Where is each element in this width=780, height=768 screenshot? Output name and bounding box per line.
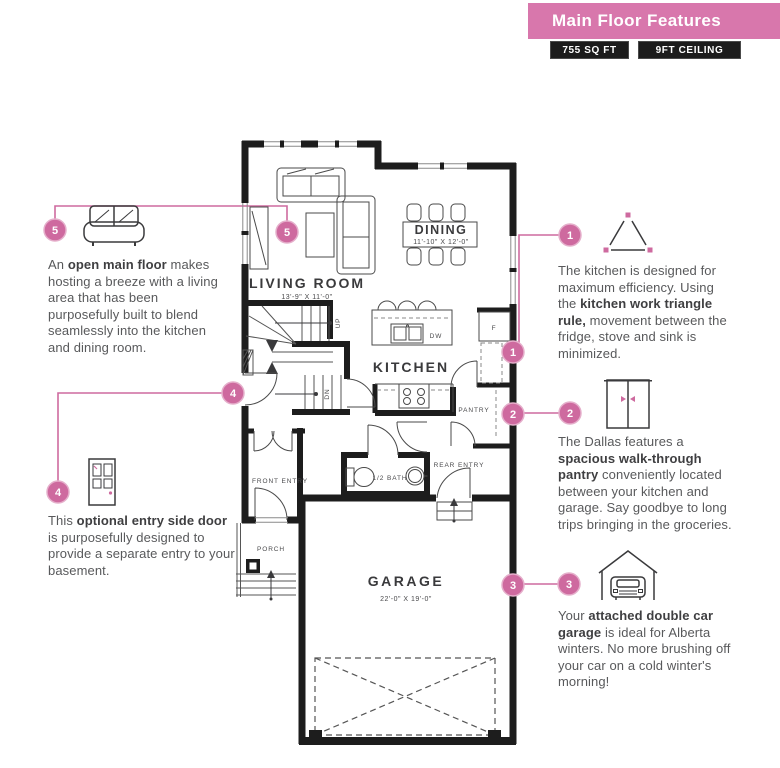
fridge-label: F xyxy=(492,325,497,332)
page: { "header": { "title": "Main Floor Featu… xyxy=(0,0,780,768)
hall-rear-door xyxy=(397,422,427,452)
porch-steps xyxy=(236,574,296,595)
pantry-kitchen-door xyxy=(451,361,477,387)
window-tick xyxy=(242,231,249,235)
text-circle-3: 3 xyxy=(558,573,580,595)
basement-stair-door xyxy=(347,379,375,407)
toilet xyxy=(346,468,374,487)
front-door xyxy=(255,488,287,520)
text-circle-4: 4 xyxy=(47,481,69,503)
stair-winders xyxy=(246,306,296,344)
bath-door xyxy=(368,425,398,455)
svg-text:4: 4 xyxy=(230,388,237,400)
dishwasher-label: DW xyxy=(430,333,443,340)
svg-text:1: 1 xyxy=(567,230,573,242)
svg-text:5: 5 xyxy=(284,227,290,239)
half-bath-label: 1/2 BATH xyxy=(373,475,408,482)
dining-label: DINING xyxy=(415,223,468,237)
svg-text:3: 3 xyxy=(510,580,516,592)
floor-plan: LIVING ROOM 13'-9" X 11'-0" DINING 11'-1… xyxy=(0,0,780,768)
kitchen-label: KITCHEN xyxy=(373,359,449,375)
pantry-doors-icon xyxy=(604,380,652,428)
svg-text:4: 4 xyxy=(55,487,62,499)
svg-text:1: 1 xyxy=(510,347,516,359)
dining-dims: 11'-10" X 12'-0" xyxy=(413,239,469,246)
porch-structure xyxy=(236,518,296,601)
stair-treads-down xyxy=(305,375,341,409)
stair-arrow xyxy=(266,340,278,352)
up-label: UP xyxy=(335,318,342,329)
range-counter xyxy=(375,384,453,412)
coffee-table xyxy=(306,213,334,257)
text-circle-1: 1 xyxy=(559,224,581,246)
plan-circle-5: 5 xyxy=(276,221,298,243)
closet-door-left xyxy=(254,431,274,451)
window-tick xyxy=(510,268,517,272)
down-label: DN xyxy=(324,388,331,399)
sofa xyxy=(277,168,375,274)
porch-railing xyxy=(237,523,241,597)
window-tick xyxy=(335,141,339,148)
pantry-label: PANTRY xyxy=(458,407,489,414)
rear-entry-label: REAR ENTRY xyxy=(434,462,485,469)
front-entry-label: FRONT ENTRY xyxy=(252,478,308,485)
island-stools xyxy=(378,301,436,310)
svg-text:2: 2 xyxy=(510,409,516,421)
sofa-icon xyxy=(84,206,144,246)
garage-car-icon xyxy=(599,551,657,600)
plan-circle-2: 2 xyxy=(502,403,524,425)
svg-text:3: 3 xyxy=(566,579,572,591)
stove xyxy=(399,384,429,408)
garage-door xyxy=(309,658,501,741)
tv-console xyxy=(250,207,268,269)
pantry-rear-door xyxy=(451,422,475,446)
window-tick xyxy=(440,163,444,170)
living-room-dims: 13'-9" X 11'-0" xyxy=(281,294,332,301)
garage-label: GARAGE xyxy=(368,573,444,589)
closet-door-right xyxy=(272,431,292,451)
living-room-label: LIVING ROOM xyxy=(249,275,365,291)
side-entry-door xyxy=(245,373,277,405)
garage-dims: 22'-0" X 19'-0" xyxy=(380,596,432,603)
window-tick xyxy=(280,141,284,148)
connector-1 xyxy=(519,235,568,344)
door-icon xyxy=(89,459,115,505)
stair-arrow xyxy=(266,362,278,374)
work-triangle-icon xyxy=(604,213,653,253)
text-circle-2: 2 xyxy=(559,402,581,424)
plan-circle-4: 4 xyxy=(222,382,244,404)
connector-4 xyxy=(58,393,236,482)
callout-connectors xyxy=(55,206,568,584)
text-circle-5: 5 xyxy=(44,219,66,241)
counter-dashed xyxy=(481,343,502,383)
porch-label: PORCH xyxy=(257,546,285,553)
svg-text:2: 2 xyxy=(567,408,573,420)
plan-circle-3: 3 xyxy=(502,574,524,596)
garage-entry-door xyxy=(437,468,470,498)
rear-entry-steps xyxy=(437,498,472,523)
plan-circle-1: 1 xyxy=(502,341,524,363)
svg-text:5: 5 xyxy=(52,225,58,237)
